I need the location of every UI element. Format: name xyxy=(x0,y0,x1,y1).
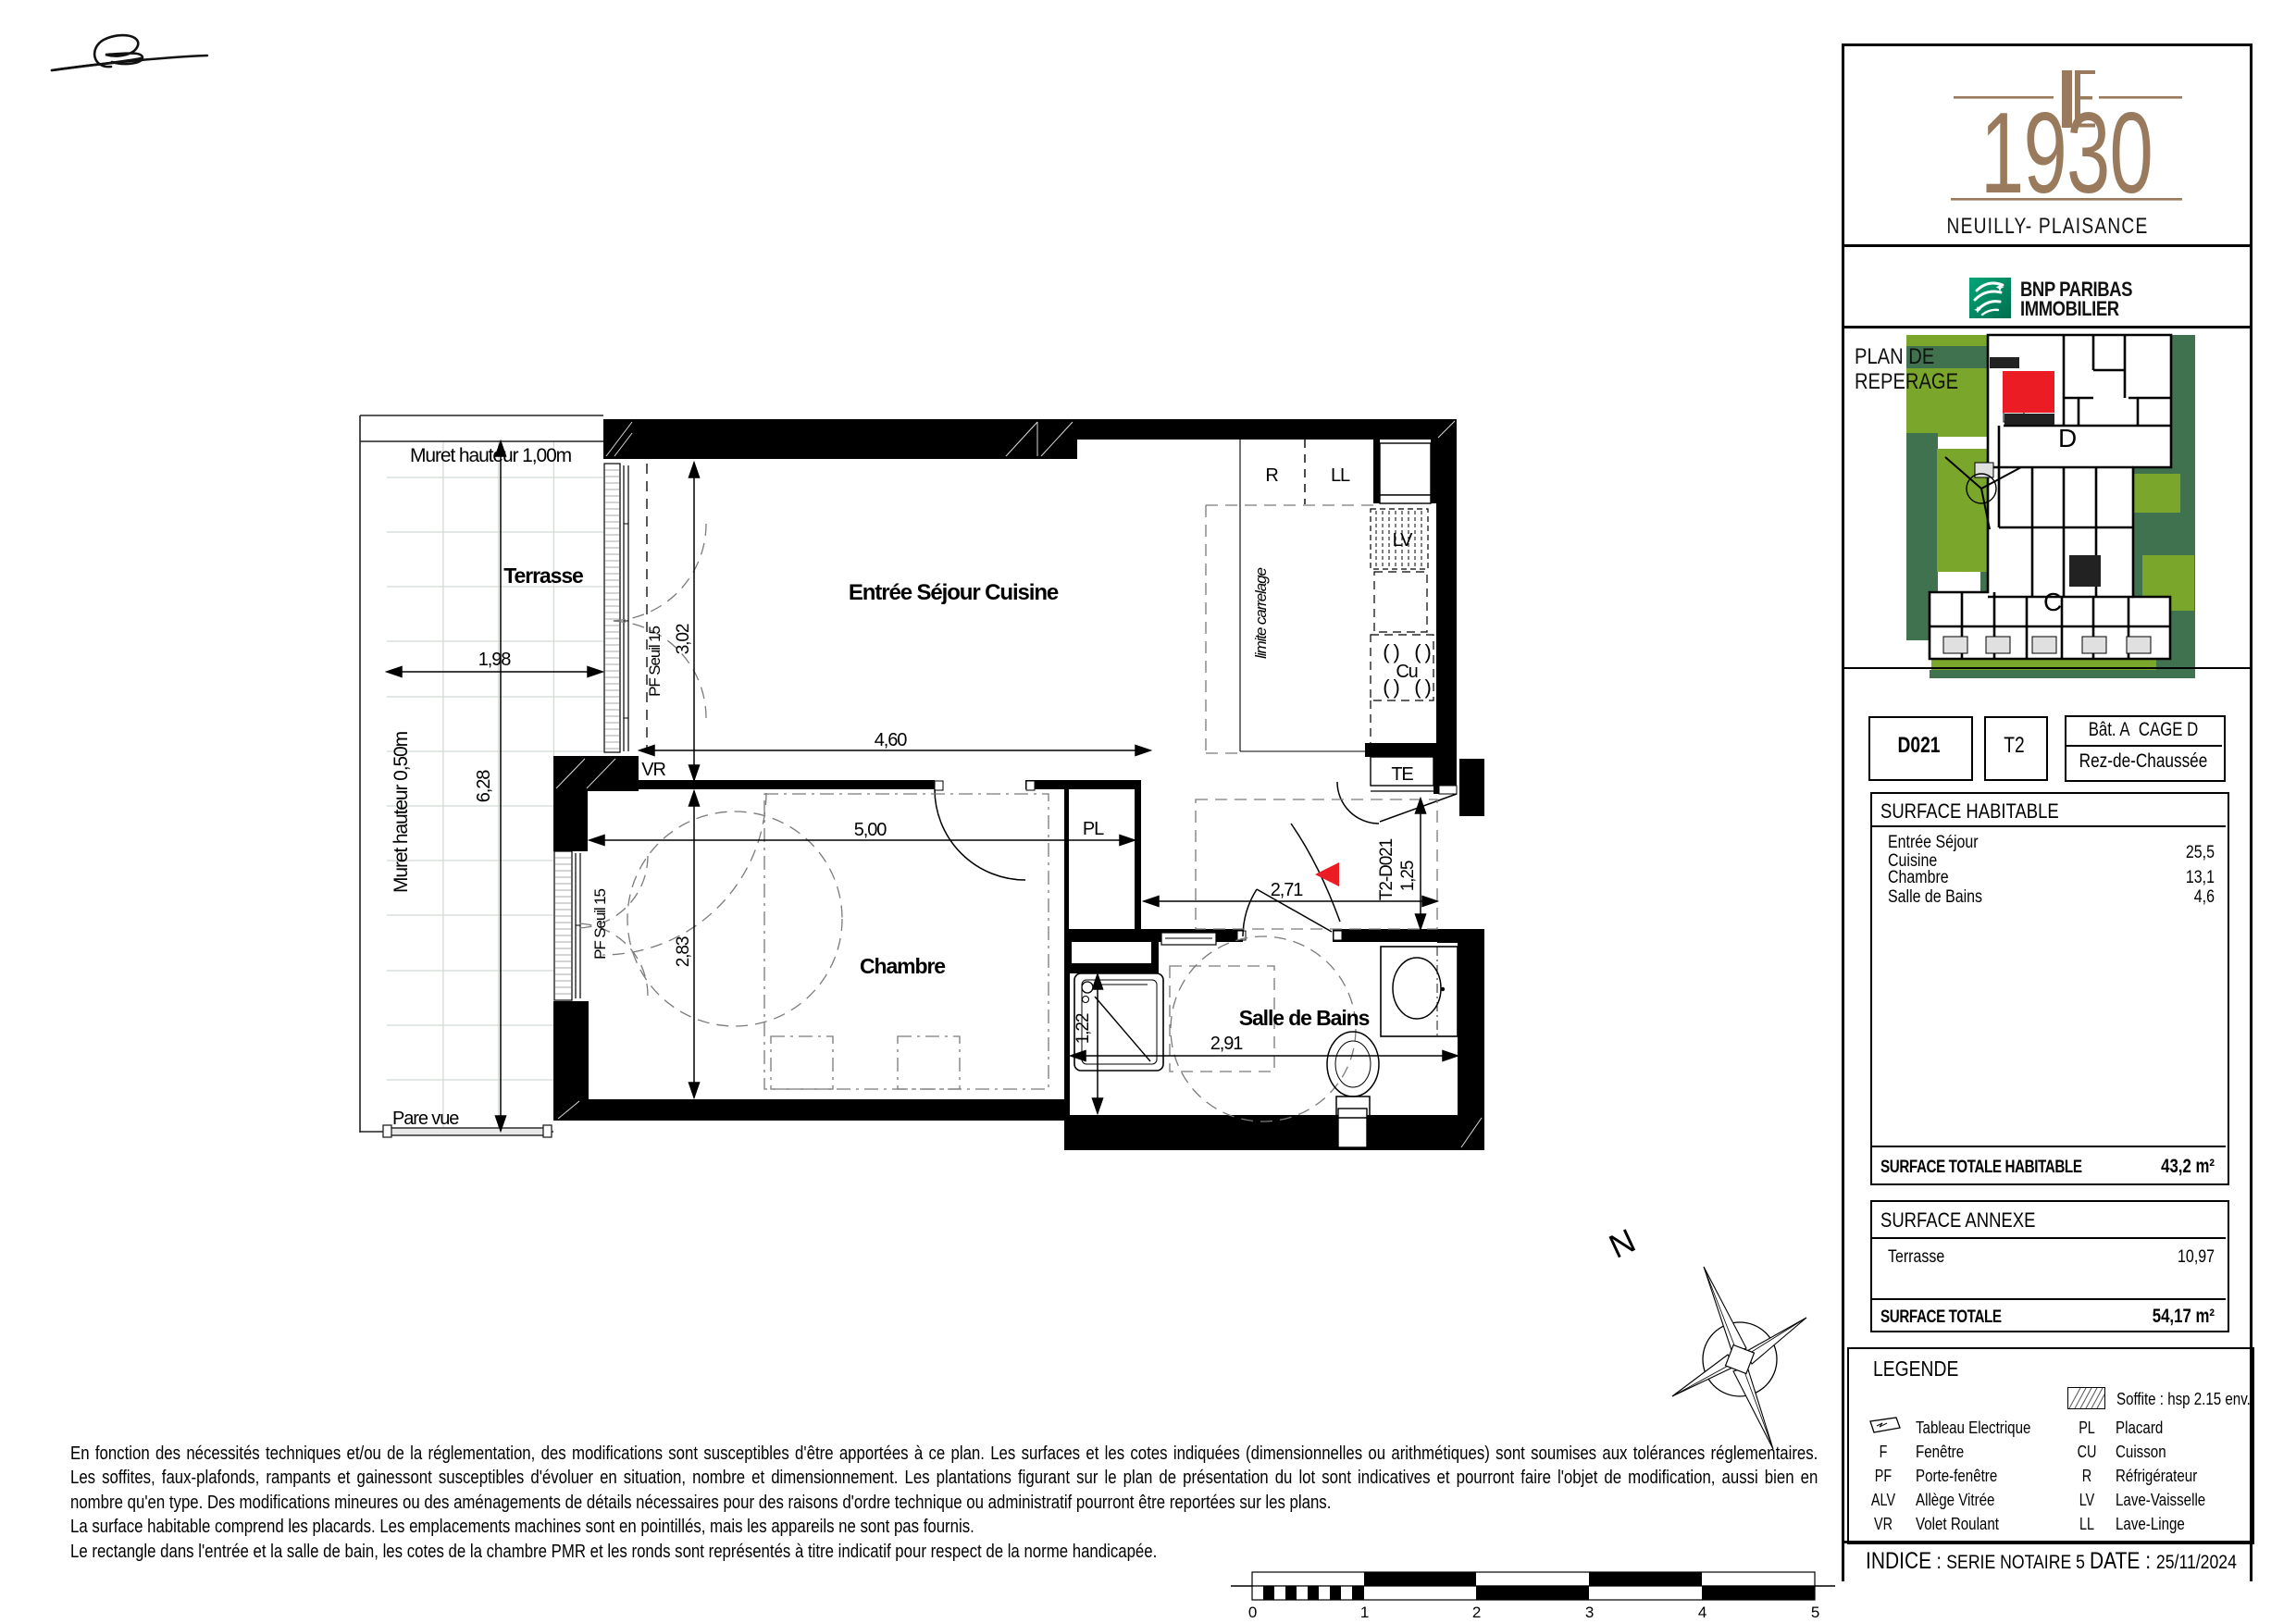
svg-text:( ): ( ) xyxy=(1383,675,1398,699)
svg-text:4,60: 4,60 xyxy=(875,730,908,750)
svg-text:( ): ( ) xyxy=(1383,640,1398,663)
svg-text:2: 2 xyxy=(1472,1604,1481,1621)
svg-text:5,00: 5,00 xyxy=(854,820,887,840)
svg-text:Muret hauteur 0,50m: Muret hauteur 0,50m xyxy=(391,731,412,893)
svg-text:1930: 1930 xyxy=(1980,90,2153,204)
svg-text:2,91: 2,91 xyxy=(1210,1034,1244,1054)
svg-text:N: N xyxy=(1603,1221,1640,1266)
svg-text:2,71: 2,71 xyxy=(1271,880,1304,900)
svg-text:Entrée Séjour Cuisine: Entrée Séjour Cuisine xyxy=(849,580,1059,605)
svg-text:Salle de Bains: Salle de Bains xyxy=(1239,1006,1370,1030)
svg-text:limite carrelage: limite carrelage xyxy=(1252,568,1270,659)
svg-text:LV: LV xyxy=(1393,530,1414,551)
svg-text:Terrasse: Terrasse xyxy=(503,564,583,588)
svg-text:2,83: 2,83 xyxy=(674,936,693,967)
svg-text:5: 5 xyxy=(1811,1604,1819,1621)
svg-text:( ): ( ) xyxy=(1414,640,1430,663)
svg-text:0: 0 xyxy=(1248,1604,1257,1621)
svg-text:1,22: 1,22 xyxy=(1074,1013,1093,1044)
svg-text:Muret hauteur 1,00m: Muret hauteur 1,00m xyxy=(410,445,572,466)
svg-text:R: R xyxy=(1265,465,1278,486)
svg-text:6,28: 6,28 xyxy=(474,770,494,803)
svg-text:PF Seuil 15: PF Seuil 15 xyxy=(646,626,664,696)
svg-text:1,25: 1,25 xyxy=(1398,861,1418,891)
svg-text:T2-D021: T2-D021 xyxy=(1377,838,1396,900)
svg-text:VR: VR xyxy=(641,760,665,780)
svg-text:1: 1 xyxy=(1360,1604,1369,1621)
svg-text:4: 4 xyxy=(1698,1604,1706,1621)
svg-text:Pare vue: Pare vue xyxy=(392,1109,459,1129)
svg-text:( ): ( ) xyxy=(1414,675,1430,699)
svg-text:3,02: 3,02 xyxy=(674,624,693,654)
svg-text:1,98: 1,98 xyxy=(478,650,512,670)
svg-text:3: 3 xyxy=(1585,1604,1594,1621)
svg-text:LL: LL xyxy=(1331,465,1350,486)
svg-text:PL: PL xyxy=(1083,819,1104,839)
svg-text:TE: TE xyxy=(1391,764,1413,785)
svg-text:Chambre: Chambre xyxy=(860,954,945,978)
svg-text:PF Seuil 15: PF Seuil 15 xyxy=(591,888,609,959)
